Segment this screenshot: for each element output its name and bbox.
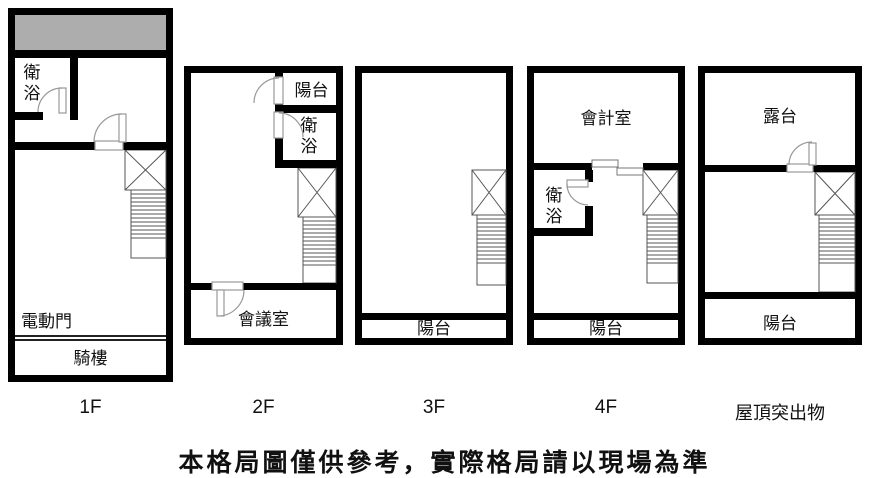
disclaimer-text: 本格局圖僅供參考，實際格局請以現場為準 xyxy=(0,443,889,478)
stairs-icon xyxy=(298,168,336,283)
gray-area xyxy=(15,15,166,50)
room-label-terrace: 露台 xyxy=(698,106,862,127)
floor-plan-4f: 會計室 衛浴 陽台 xyxy=(527,66,685,345)
room-label-balcony: 陽台 xyxy=(355,318,513,339)
floor-plan-2f: 陽台 衛浴 會議室 xyxy=(184,66,343,345)
floor-label-2f: 2F xyxy=(184,397,343,419)
floor-plan-1f: 衛浴 電動門 騎樓 xyxy=(8,8,173,382)
floor-plan-3f-drawing xyxy=(355,66,513,345)
room-label-balcony: 陽台 xyxy=(287,80,336,101)
stairs-icon xyxy=(643,170,678,283)
room-label-arcade: 騎樓 xyxy=(8,348,173,369)
stairs-icon xyxy=(125,150,166,258)
floor-label-1f: 1F xyxy=(8,397,173,419)
floor-plan-2f-drawing xyxy=(184,66,343,345)
room-label-bath: 衛浴 xyxy=(540,185,568,227)
room-label-bath: 衛浴 xyxy=(295,115,323,157)
room-label-balcony: 陽台 xyxy=(527,318,685,339)
room-label-balcony: 陽台 xyxy=(698,313,862,334)
floor-label-roof: 屋頂突出物 xyxy=(698,399,862,425)
room-label-electric-door: 電動門 xyxy=(21,311,72,332)
room-label-accounting: 會計室 xyxy=(527,108,685,129)
room-label-meeting: 會議室 xyxy=(184,309,343,330)
floor-label-3f: 3F xyxy=(355,397,513,419)
floor-plan-roof: 露台 陽台 xyxy=(698,66,862,345)
floor-plan-diagram: 衛浴 電動門 騎樓 xyxy=(0,0,889,478)
stairs-icon xyxy=(815,172,855,292)
floor-label-4f: 4F xyxy=(527,397,685,419)
stairs-icon xyxy=(472,170,506,285)
floor-plan-3f: 陽台 xyxy=(355,66,513,345)
room-label-bath: 衛浴 xyxy=(18,62,46,104)
